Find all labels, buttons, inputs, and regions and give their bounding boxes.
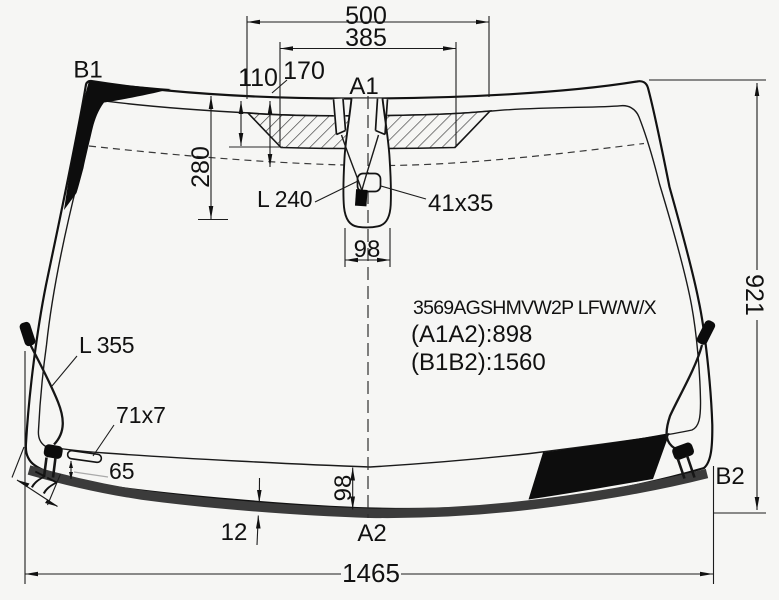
svg-text:1465: 1465: [342, 558, 400, 588]
svg-text:98: 98: [330, 475, 357, 502]
svg-text:L 355: L 355: [79, 332, 134, 358]
svg-text:B2: B2: [715, 463, 744, 490]
svg-text:110: 110: [238, 64, 278, 92]
svg-text:3569AGSHMVW2P LFW/W/X: 3569AGSHMVW2P LFW/W/X: [413, 297, 657, 319]
svg-text:12: 12: [221, 519, 248, 546]
svg-text:385: 385: [345, 24, 387, 52]
svg-text:71x7: 71x7: [116, 402, 166, 428]
svg-text:L 240: L 240: [257, 186, 312, 212]
svg-text:65: 65: [109, 458, 135, 484]
svg-text:921: 921: [740, 274, 768, 316]
svg-text:A2: A2: [357, 520, 386, 547]
svg-text:B1: B1: [73, 57, 102, 84]
svg-text:(B1B2):1560: (B1B2):1560: [411, 349, 546, 376]
svg-text:170: 170: [283, 57, 325, 85]
svg-text:98: 98: [354, 236, 381, 263]
svg-text:A1: A1: [349, 73, 378, 100]
svg-text:280: 280: [187, 146, 215, 188]
svg-text:41x35: 41x35: [428, 190, 493, 217]
svg-text:(A1A2):898: (A1A2):898: [411, 321, 532, 348]
